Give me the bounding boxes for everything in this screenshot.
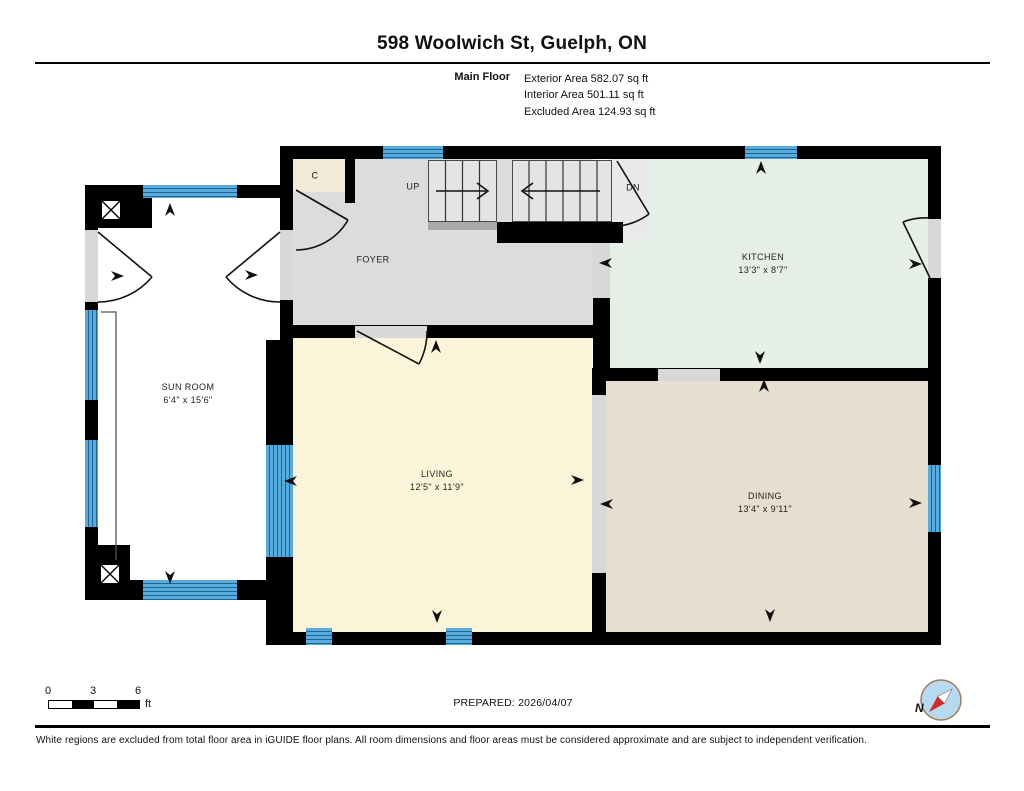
room-label-sunroom: SUN ROOM 6'4" x 15'6"	[162, 381, 215, 407]
stairs-up-label: UP	[406, 181, 419, 194]
opening-foyer-living	[355, 326, 427, 338]
scale-bar: 0 3 6 ft	[48, 685, 208, 715]
stairs-dn-label: DN	[626, 182, 640, 195]
header-divider	[35, 62, 990, 64]
window-sunroom-left-upper	[85, 310, 98, 400]
opening-kitchen-dining	[658, 369, 720, 381]
window-sunroom-left-lower	[85, 440, 98, 527]
window-dining-right	[928, 465, 941, 532]
wall-top	[280, 146, 941, 159]
scale-unit: ft	[145, 698, 151, 710]
window-sunroom-top	[143, 185, 237, 198]
page-title: 598 Woolwich St, Guelph, ON	[0, 33, 1024, 55]
room-label-closet: C	[312, 170, 319, 183]
wall-living-dining-bottom	[592, 573, 606, 645]
opening-foyer-kitchen	[593, 243, 610, 298]
exterior-area: Exterior Area 582.07 sq ft	[524, 71, 655, 87]
opening-living-dining	[592, 395, 606, 573]
room-name: KITCHEN	[738, 251, 787, 264]
room-label-dining: DINING 13'4" x 9'11"	[738, 490, 792, 516]
window-sunroom-living	[266, 445, 293, 557]
wall-living-dining-top	[592, 368, 606, 395]
window-living-bottom-1	[306, 628, 332, 645]
wall-bottom	[280, 632, 941, 645]
room-dims: 13'4" x 9'11"	[738, 503, 792, 516]
wall-under-stairs	[497, 222, 623, 243]
stairs-down	[512, 160, 612, 222]
floor-plan-page: { "header": { "title": "598 Woolwich St,…	[0, 0, 1024, 791]
room-closet	[293, 159, 353, 192]
room-name: LIVING	[410, 468, 464, 481]
footer-divider	[35, 725, 990, 728]
stairs-up-landing	[428, 222, 497, 230]
opening-foyer-sunroom	[280, 230, 293, 300]
compass-north-label: N	[915, 701, 924, 715]
scale-tick-0: 0	[45, 685, 51, 697]
window-foyer-top	[383, 146, 443, 159]
stairs-up	[428, 160, 497, 222]
scale-tick-3: 3	[90, 685, 96, 697]
wall-foyer-living	[280, 325, 597, 338]
window-sunroom-bottom	[143, 580, 237, 600]
wall-closet-right	[345, 159, 355, 203]
room-dims: 13'3" x 8'7"	[738, 264, 787, 277]
room-name: DINING	[738, 490, 792, 503]
room-name: SUN ROOM	[162, 381, 215, 394]
room-label-foyer: FOYER	[356, 254, 389, 267]
wall-kitchen-dining	[593, 368, 941, 381]
compass-icon	[921, 680, 961, 720]
room-dims: 6'4" x 15'6"	[162, 394, 215, 407]
excluded-area: Excluded Area 124.93 sq ft	[524, 104, 655, 120]
prepared-date: PREPARED: 2026/04/07	[378, 697, 648, 709]
opening-sunroom-exterior	[85, 230, 98, 302]
room-dims: 12'5" x 11'9"	[410, 481, 464, 494]
footer-disclaimer: White regions are excluded from total fl…	[36, 735, 867, 746]
area-summary: Exterior Area 582.07 sq ft Interior Area…	[524, 71, 655, 120]
window-living-bottom-2	[446, 628, 472, 645]
scale-bar-segments	[48, 700, 140, 709]
room-label-living: LIVING 12'5" x 11'9"	[410, 468, 464, 494]
floor-label: Main Floor	[390, 71, 510, 83]
room-name: C	[312, 170, 319, 183]
room-label-kitchen: KITCHEN 13'3" x 8'7"	[738, 251, 787, 277]
wall-foyer-kitchen	[593, 298, 610, 368]
room-name: FOYER	[356, 254, 389, 267]
interior-area: Interior Area 501.11 sq ft	[524, 87, 655, 103]
opening-kitchen-exterior	[928, 219, 941, 278]
scale-tick-6: 6	[135, 685, 141, 697]
window-kitchen-top	[745, 146, 797, 159]
